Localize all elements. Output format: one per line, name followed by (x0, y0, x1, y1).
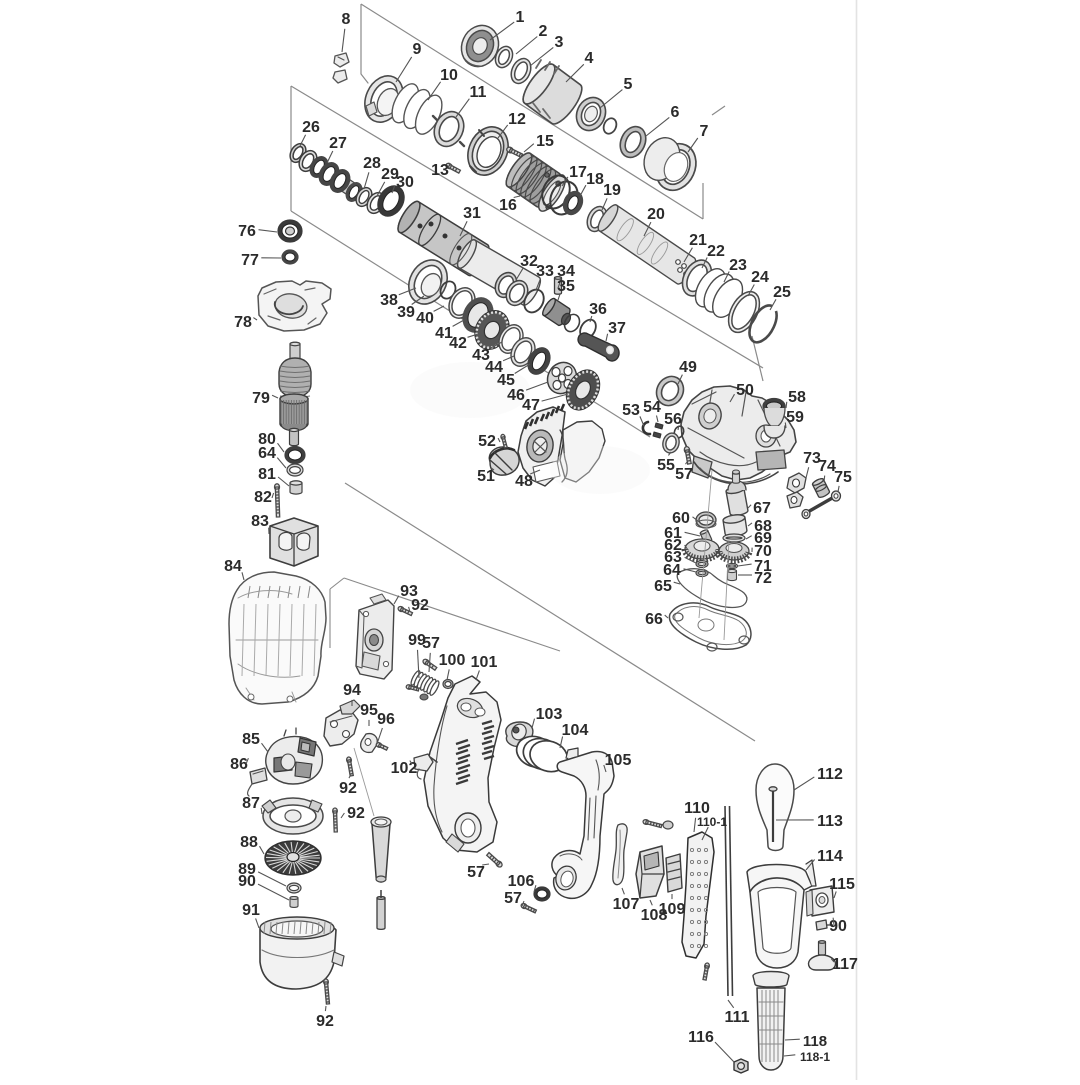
svg-text:48: 48 (515, 473, 533, 490)
svg-text:104: 104 (562, 722, 589, 739)
svg-text:67: 67 (753, 500, 771, 517)
svg-text:18: 18 (586, 171, 604, 188)
svg-text:57: 57 (504, 890, 522, 907)
svg-text:35: 35 (557, 278, 575, 295)
svg-text:84: 84 (224, 558, 242, 575)
svg-text:6: 6 (671, 104, 680, 121)
svg-text:115: 115 (829, 876, 855, 893)
svg-text:118: 118 (803, 1033, 827, 1050)
svg-text:36: 36 (589, 301, 607, 318)
svg-text:13: 13 (431, 162, 449, 179)
svg-text:27: 27 (329, 135, 347, 152)
svg-text:33: 33 (536, 263, 554, 280)
svg-text:111: 111 (725, 1009, 750, 1026)
svg-text:52: 52 (478, 433, 496, 450)
svg-text:23: 23 (729, 257, 747, 274)
svg-text:56: 56 (664, 411, 682, 428)
svg-text:2: 2 (539, 23, 548, 40)
svg-text:64: 64 (258, 445, 276, 462)
svg-text:26: 26 (302, 119, 320, 136)
svg-text:24: 24 (751, 269, 769, 286)
svg-text:117: 117 (832, 956, 858, 973)
svg-text:91: 91 (242, 902, 260, 919)
svg-text:1: 1 (516, 9, 525, 26)
svg-text:113: 113 (817, 813, 843, 830)
svg-text:75: 75 (834, 469, 852, 486)
svg-text:57: 57 (422, 635, 440, 652)
svg-text:16: 16 (499, 197, 517, 214)
svg-text:59: 59 (786, 409, 804, 426)
svg-text:92: 92 (316, 1013, 334, 1030)
svg-text:37: 37 (608, 320, 626, 337)
svg-text:57: 57 (467, 864, 485, 881)
svg-text:78: 78 (234, 314, 252, 331)
svg-text:47: 47 (522, 397, 540, 414)
svg-text:66: 66 (645, 611, 663, 628)
svg-text:51: 51 (477, 468, 495, 485)
svg-text:103: 103 (536, 706, 563, 723)
svg-text:92: 92 (411, 597, 429, 614)
svg-text:116: 116 (688, 1029, 714, 1046)
svg-text:38: 38 (380, 292, 398, 309)
svg-text:50: 50 (736, 382, 754, 399)
svg-text:11: 11 (470, 84, 487, 101)
svg-text:90: 90 (238, 873, 256, 890)
svg-text:30: 30 (396, 174, 414, 191)
svg-text:65: 65 (654, 578, 672, 595)
svg-text:20: 20 (647, 206, 665, 223)
svg-text:110-1: 110-1 (697, 815, 727, 829)
svg-text:64: 64 (663, 562, 681, 579)
svg-text:31: 31 (463, 205, 481, 222)
svg-text:49: 49 (679, 359, 697, 376)
svg-text:15: 15 (536, 133, 554, 150)
svg-text:7: 7 (700, 123, 709, 140)
svg-text:3: 3 (555, 34, 564, 51)
svg-text:94: 94 (343, 682, 361, 699)
svg-text:22: 22 (707, 243, 725, 260)
svg-text:42: 42 (449, 335, 467, 352)
svg-text:102: 102 (391, 760, 418, 777)
svg-text:95: 95 (360, 702, 378, 719)
svg-text:114: 114 (817, 848, 843, 865)
svg-text:21: 21 (689, 232, 707, 249)
svg-text:19: 19 (603, 182, 621, 199)
svg-text:39: 39 (397, 304, 415, 321)
svg-text:8: 8 (342, 11, 351, 28)
svg-text:107: 107 (613, 896, 640, 913)
svg-text:101: 101 (471, 654, 498, 671)
svg-text:12: 12 (508, 111, 526, 128)
svg-text:83: 83 (251, 513, 269, 530)
svg-text:106: 106 (508, 873, 535, 890)
svg-text:58: 58 (788, 389, 806, 406)
svg-text:4: 4 (585, 50, 594, 67)
svg-text:118-1: 118-1 (800, 1050, 830, 1064)
svg-text:72: 72 (754, 570, 772, 587)
svg-text:96: 96 (377, 711, 395, 728)
svg-text:82: 82 (254, 489, 272, 506)
svg-text:109: 109 (659, 901, 686, 918)
svg-text:88: 88 (240, 834, 258, 851)
svg-text:9: 9 (413, 41, 422, 58)
svg-text:85: 85 (242, 731, 260, 748)
svg-text:90: 90 (829, 918, 847, 935)
svg-text:76: 76 (238, 223, 256, 240)
svg-text:79: 79 (252, 390, 270, 407)
svg-text:81: 81 (258, 466, 276, 483)
svg-text:5: 5 (624, 76, 633, 93)
svg-text:86: 86 (230, 756, 248, 773)
svg-text:105: 105 (605, 752, 632, 769)
svg-text:55: 55 (657, 457, 675, 474)
svg-text:112: 112 (817, 766, 843, 783)
svg-text:54: 54 (643, 399, 661, 416)
svg-text:87: 87 (242, 795, 260, 812)
svg-text:57: 57 (675, 466, 693, 483)
svg-text:28: 28 (363, 155, 381, 172)
svg-text:100: 100 (439, 652, 466, 669)
svg-text:10: 10 (440, 67, 458, 84)
svg-text:17: 17 (569, 164, 587, 181)
svg-text:25: 25 (773, 284, 791, 301)
svg-text:77: 77 (241, 252, 259, 269)
svg-text:40: 40 (416, 310, 434, 327)
svg-text:92: 92 (347, 805, 365, 822)
svg-text:53: 53 (622, 402, 640, 419)
svg-text:92: 92 (339, 780, 357, 797)
